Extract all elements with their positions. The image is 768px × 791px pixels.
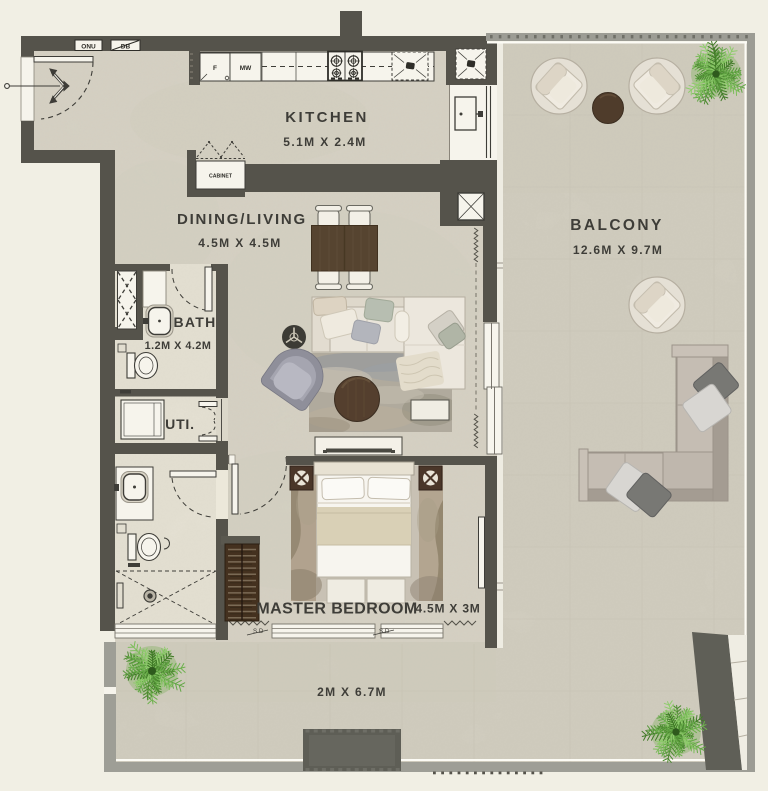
svg-text:CABINET: CABINET (209, 174, 233, 180)
svg-text:MASTER BEDROOM: MASTER BEDROOM (256, 601, 417, 618)
svg-text:BALCONY: BALCONY (570, 217, 663, 234)
svg-text:5.1M X 2.4M: 5.1M X 2.4M (283, 135, 366, 149)
svg-text:KITCHEN: KITCHEN (285, 109, 368, 126)
svg-text:4.5M X 3M: 4.5M X 3M (415, 602, 480, 616)
svg-text:1.2M X 4.2M: 1.2M X 4.2M (145, 340, 212, 352)
svg-text:F: F (213, 65, 217, 72)
svg-text:4.5M X 4.5M: 4.5M X 4.5M (198, 236, 281, 250)
svg-text:12.6M X 9.7M: 12.6M X 9.7M (573, 243, 663, 257)
svg-text:ONU: ONU (81, 43, 96, 50)
svg-text:UTI.: UTI. (165, 416, 195, 432)
svg-text:DINING/LIVING: DINING/LIVING (177, 211, 307, 228)
svg-text:BATH: BATH (173, 314, 216, 330)
svg-text:2M X 6.7M: 2M X 6.7M (317, 685, 387, 699)
svg-text:MW: MW (240, 65, 252, 72)
